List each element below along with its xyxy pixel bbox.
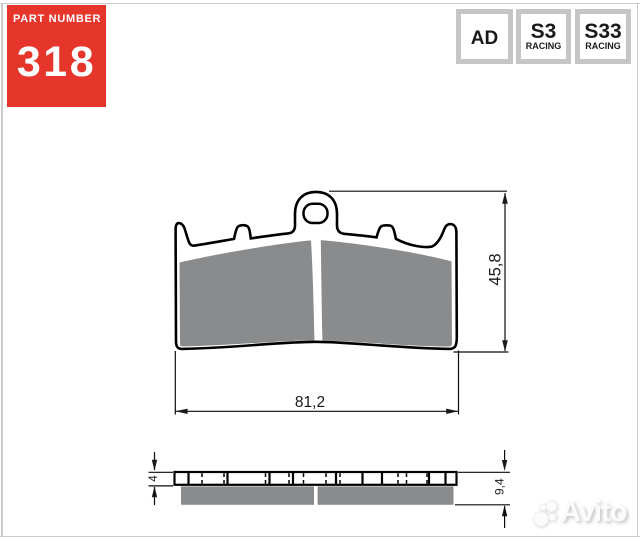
svg-text:9,4: 9,4 <box>493 478 507 495</box>
svg-text:45,8: 45,8 <box>487 253 505 285</box>
svg-text:4: 4 <box>148 475 160 482</box>
svg-text:81,2: 81,2 <box>295 394 325 411</box>
